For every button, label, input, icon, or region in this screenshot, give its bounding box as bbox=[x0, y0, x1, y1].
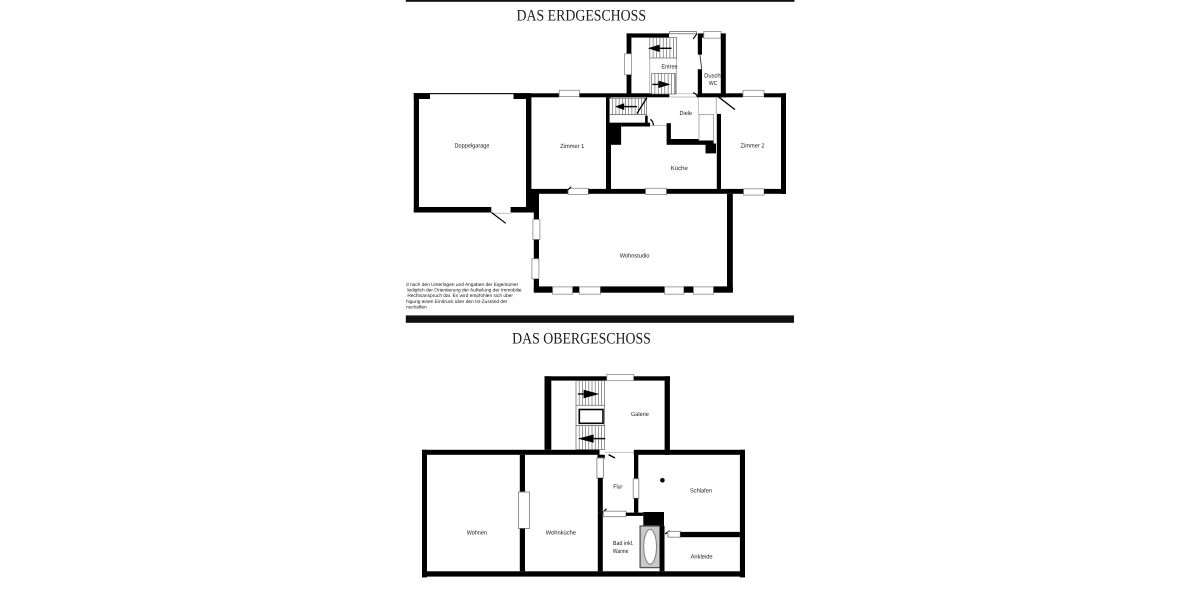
svg-text:Flur: Flur bbox=[613, 484, 622, 491]
svg-text:Rechtsanspruch dar. Es wird em: Rechtsanspruch dar. Es wird empfohlen si… bbox=[406, 293, 513, 299]
svg-text:WC: WC bbox=[709, 80, 718, 87]
svg-text:Bad inkl.: Bad inkl. bbox=[613, 540, 634, 547]
svg-text:Wanne: Wanne bbox=[613, 548, 629, 555]
svg-text:Ankleide: Ankleide bbox=[691, 553, 714, 560]
svg-text:nschaffen.: nschaffen. bbox=[406, 305, 428, 311]
svg-text:Wohnküche: Wohnküche bbox=[546, 530, 577, 537]
svg-text:lediglich der Orientierung der: lediglich der Orientierung der Aufteilun… bbox=[406, 288, 522, 294]
svg-text:higung einen Eindruck über den: higung einen Eindruck über den Ist-Zusta… bbox=[406, 299, 508, 305]
svg-text:Küche: Küche bbox=[671, 165, 689, 172]
svg-text:DAS OBERGESCHOSS: DAS OBERGESCHOSS bbox=[512, 331, 651, 348]
svg-text:Galerie: Galerie bbox=[631, 411, 650, 418]
svg-text:Doppelgarage: Doppelgarage bbox=[455, 143, 491, 150]
svg-text:Wohnen: Wohnen bbox=[467, 530, 487, 537]
svg-text:Zimmer 2: Zimmer 2 bbox=[741, 143, 766, 150]
svg-text:Diele: Diele bbox=[680, 110, 693, 117]
svg-text:Zimmer 1: Zimmer 1 bbox=[560, 143, 585, 150]
svg-text:Wohnstudio: Wohnstudio bbox=[620, 253, 650, 260]
svg-text:d nach den Unterlagen und Anga: d nach den Unterlagen und Angaben der Ei… bbox=[406, 282, 519, 288]
svg-text:Entree: Entree bbox=[661, 64, 678, 71]
svg-text:Dusch: Dusch bbox=[704, 73, 721, 80]
svg-text:DAS ERDGESCHOSS: DAS ERDGESCHOSS bbox=[517, 8, 647, 25]
svg-text:Schlafen: Schlafen bbox=[690, 488, 712, 495]
